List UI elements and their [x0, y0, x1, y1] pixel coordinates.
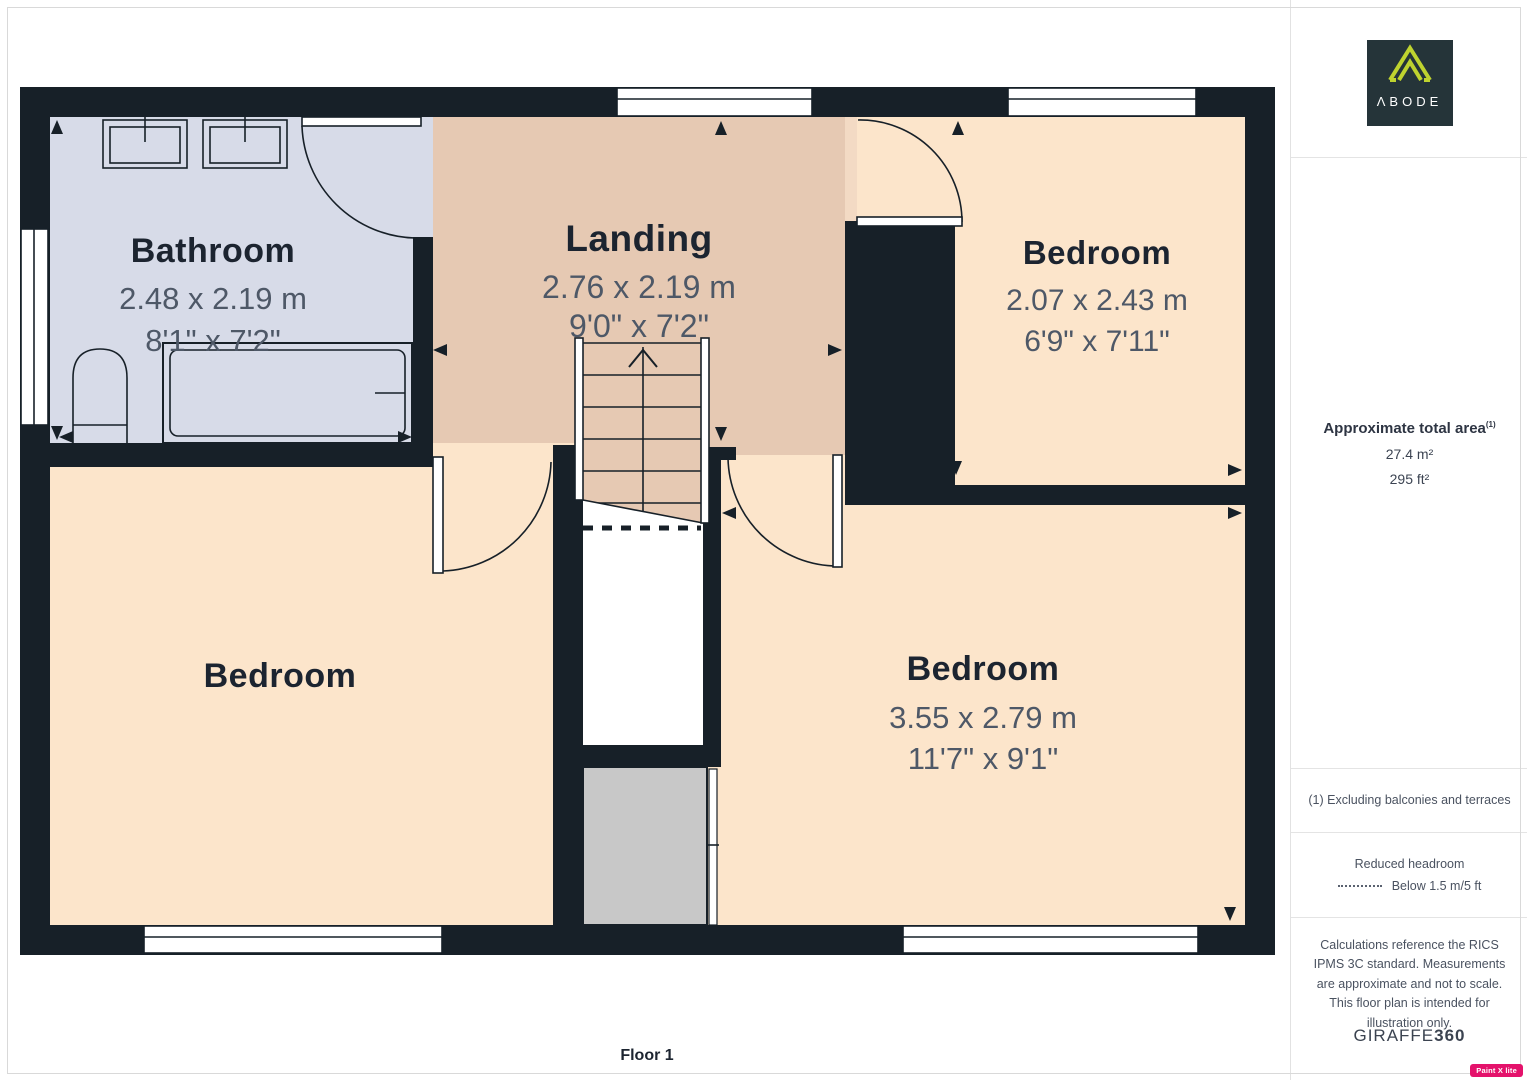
room-label-bedroom-bottom-left: Bedroom — [204, 657, 357, 695]
reduced-headroom-legend: Reduced headroom Below 1.5 m/5 ft — [1291, 832, 1527, 917]
abode-logo-text: ΛBODE — [1377, 94, 1443, 109]
total-area-note-ref: (1) — [1486, 420, 1496, 429]
bedroom-bottom-right-floor — [703, 455, 1245, 925]
room-label-bathroom: Bathroom — [131, 232, 296, 270]
stair-rail-right — [701, 338, 709, 523]
room-label-bedroom-bottom-right: Bedroom — [907, 650, 1060, 688]
under-stairs-panel — [709, 769, 717, 925]
watermark-badge: Paint X lite — [1470, 1064, 1523, 1077]
giraffe360-name: GIRAFFE — [1353, 1026, 1434, 1045]
floorplan-drawing: Bathroom 2.48 x 2.19 m 8'1" x 7'2" Landi… — [0, 0, 1290, 1080]
total-area-title: Approximate total area(1) — [1291, 420, 1527, 437]
giraffe360-suffix: 360 — [1434, 1026, 1465, 1045]
window — [21, 229, 48, 425]
room-dim-metric: 2.76 x 2.19 m — [542, 269, 736, 305]
total-area-metric: 27.4 m² — [1291, 446, 1527, 462]
staircase — [583, 338, 703, 528]
floor-label: Floor 1 — [620, 1047, 673, 1064]
stair-rail-left — [575, 338, 583, 500]
window — [903, 926, 1198, 953]
window — [617, 88, 812, 116]
abode-logo: ΛBODE — [1367, 40, 1453, 126]
giraffe360-brand: GIRAFFE360 — [1291, 1026, 1527, 1046]
room-dim-imperial: 9'0" x 7'2" — [569, 308, 709, 344]
room-dim-imperial: 11'7" x 9'1" — [908, 741, 1058, 776]
total-area-title-text: Approximate total area — [1323, 420, 1486, 437]
room-dim-metric: 3.55 x 2.79 m — [889, 700, 1077, 735]
stair-void — [583, 500, 703, 745]
room-dim-imperial: 6'9" x 7'11" — [1024, 325, 1170, 358]
window — [144, 926, 442, 953]
under-stairs-block — [583, 767, 707, 925]
floorplan-page: Bathroom 2.48 x 2.19 m 8'1" x 7'2" Landi… — [0, 0, 1527, 1080]
divider — [1291, 157, 1527, 158]
room-label-bedroom-top-right: Bedroom — [1023, 234, 1171, 271]
info-sidebar: ΛBODE Approximate total area(1) 27.4 m² … — [1290, 0, 1527, 1080]
area-footnote: (1) Excluding balconies and terraces — [1291, 768, 1527, 832]
disclaimer-text: Calculations reference the RICS IPMS 3C … — [1308, 936, 1512, 1033]
dotted-line-swatch — [1338, 885, 1382, 887]
total-area-block: Approximate total area(1) 27.4 m² 295 ft… — [1291, 420, 1527, 487]
room-dim-imperial: 8'1" x 7'2" — [145, 323, 281, 358]
window — [1008, 88, 1196, 116]
total-area-imperial: 295 ft² — [1291, 471, 1527, 487]
room-dim-metric: 2.07 x 2.43 m — [1006, 284, 1188, 317]
room-label-landing: Landing — [565, 218, 712, 259]
abode-logo-mark-icon — [1382, 40, 1438, 92]
legend-title: Reduced headroom — [1355, 857, 1465, 871]
room-dim-metric: 2.48 x 2.19 m — [119, 281, 307, 316]
divider — [1291, 917, 1527, 918]
legend-label: Below 1.5 m/5 ft — [1392, 879, 1482, 893]
